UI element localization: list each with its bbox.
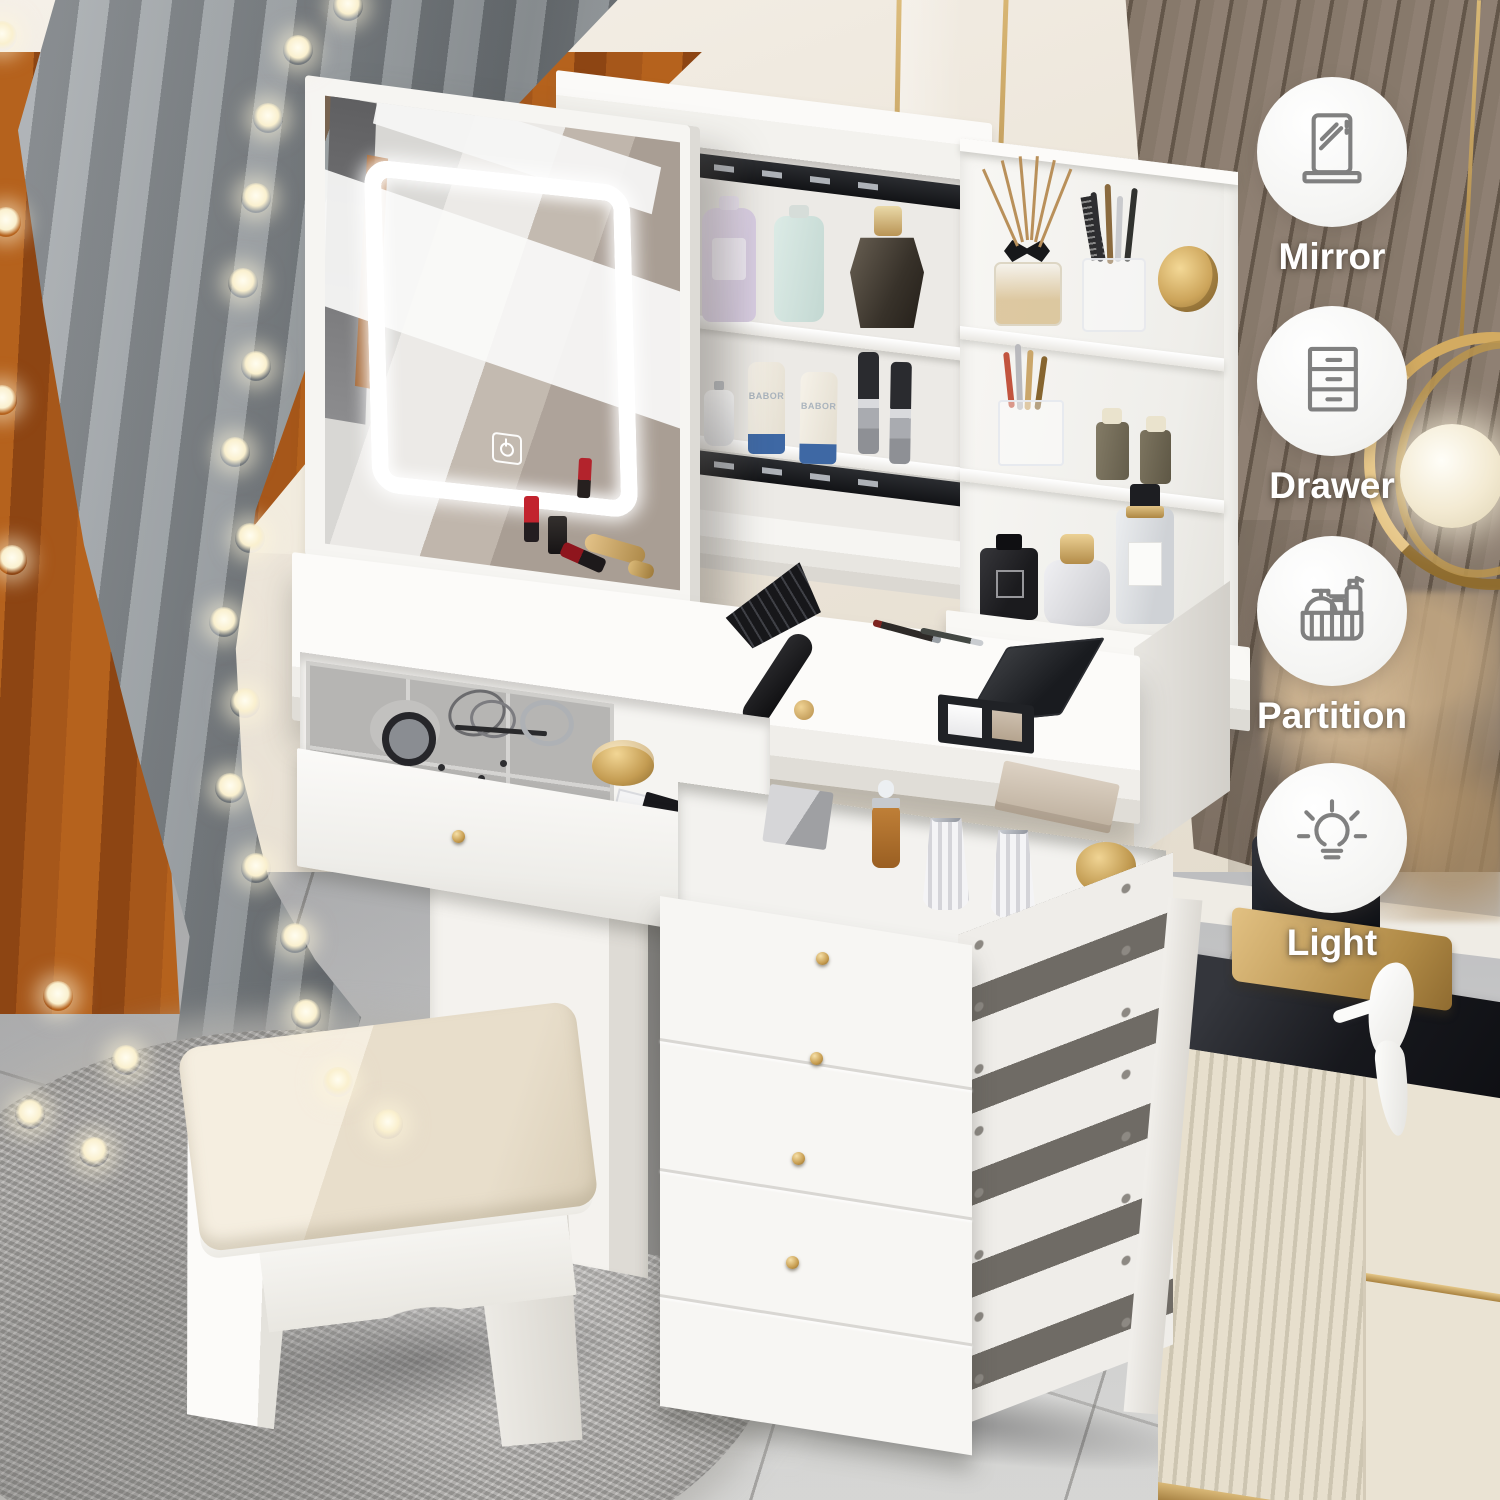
product-photo-vanity-set: BABOR BABOR	[0, 0, 1500, 1500]
feature-label-mirror: Mirror	[1257, 236, 1407, 278]
reed-diffuser	[994, 262, 1062, 326]
cosmetic-tube: BABOR	[748, 362, 785, 454]
mirror-glass	[325, 96, 680, 591]
drawer-knob[interactable]	[452, 830, 465, 843]
feature-badge-partition	[1257, 536, 1407, 686]
led-light-ring	[363, 158, 638, 519]
gray-box	[762, 784, 833, 850]
feature-label-partition: Partition	[1257, 695, 1407, 737]
drawer-knob[interactable]	[816, 952, 829, 965]
lotion-bottle-lavender	[702, 208, 756, 322]
cosmetic-bottle-olive	[1140, 430, 1171, 484]
perfume-bottle-dark	[850, 232, 924, 328]
fluted-panel	[1158, 1044, 1363, 1500]
earring	[438, 764, 445, 771]
shelf	[960, 326, 1224, 371]
brush-holder-cup	[1082, 258, 1146, 332]
mirror-icon	[1288, 108, 1376, 196]
drawer-knob[interactable]	[786, 1256, 799, 1269]
drawer-knob[interactable]	[792, 1152, 805, 1165]
serum-dropper-bottle	[872, 806, 900, 868]
drawer-cabinet-front	[660, 896, 972, 1455]
lotion-bottle-mint	[774, 216, 824, 322]
lipstick-red	[524, 496, 539, 542]
sideboard-body	[1158, 1044, 1500, 1500]
powder-pan-taupe	[992, 710, 1022, 742]
drawer-seam	[660, 1168, 972, 1220]
power-touch-icon[interactable]	[492, 431, 522, 465]
perfume-bottle-tall	[1116, 508, 1174, 624]
gold-collar	[1126, 506, 1164, 518]
drawer-knob[interactable]	[810, 1052, 823, 1065]
shelf	[960, 468, 1224, 513]
feature-label-drawer: Drawer	[1257, 465, 1407, 507]
tube-brand-text: BABOR	[800, 401, 837, 412]
perfume-cap-gold	[874, 206, 902, 236]
feature-label-light: Light	[1257, 922, 1407, 964]
pendant-lamp-globe	[1400, 424, 1500, 528]
sideboard-gold-handle	[1366, 1273, 1500, 1303]
feature-badge-drawer	[1257, 306, 1407, 456]
perfume-bottle-black	[980, 548, 1038, 620]
feature-badge-mirror	[1257, 77, 1407, 227]
drawer-icon	[1288, 337, 1376, 425]
vanity-mirror	[305, 75, 700, 615]
sideboard-seam	[1363, 1076, 1366, 1500]
mascara-tube	[889, 362, 912, 464]
drawer-seam	[660, 1294, 972, 1346]
partition-icon	[1288, 567, 1376, 655]
perfume-bottle-round-gold-cap	[1044, 560, 1110, 626]
lipstick-red	[577, 458, 592, 499]
mini-perfume	[704, 390, 734, 446]
cosmetic-bottle-olive	[1096, 422, 1129, 480]
hair-brush-gold-tip	[794, 700, 814, 720]
mascara-tube	[858, 352, 879, 454]
acrylic-organizer	[998, 400, 1064, 466]
feature-badge-light	[1257, 763, 1407, 913]
gold-jar	[592, 740, 654, 786]
light-icon	[1288, 794, 1376, 882]
tube-brand-text: BABOR	[748, 391, 785, 401]
powder-pan-white	[948, 704, 982, 738]
cosmetic-tube: BABOR	[799, 372, 838, 465]
earring	[500, 760, 507, 767]
